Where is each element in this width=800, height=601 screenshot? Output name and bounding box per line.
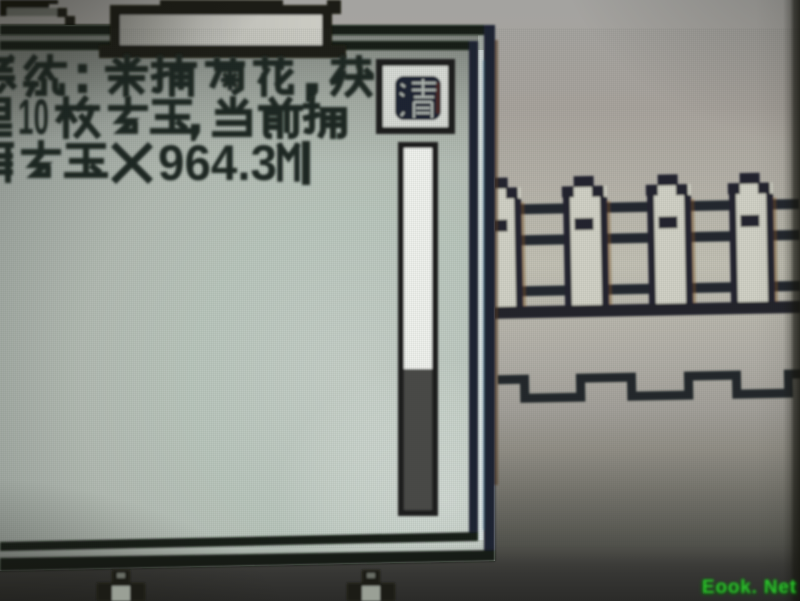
svg-text:Eook. Net: Eook. Net (702, 577, 797, 598)
